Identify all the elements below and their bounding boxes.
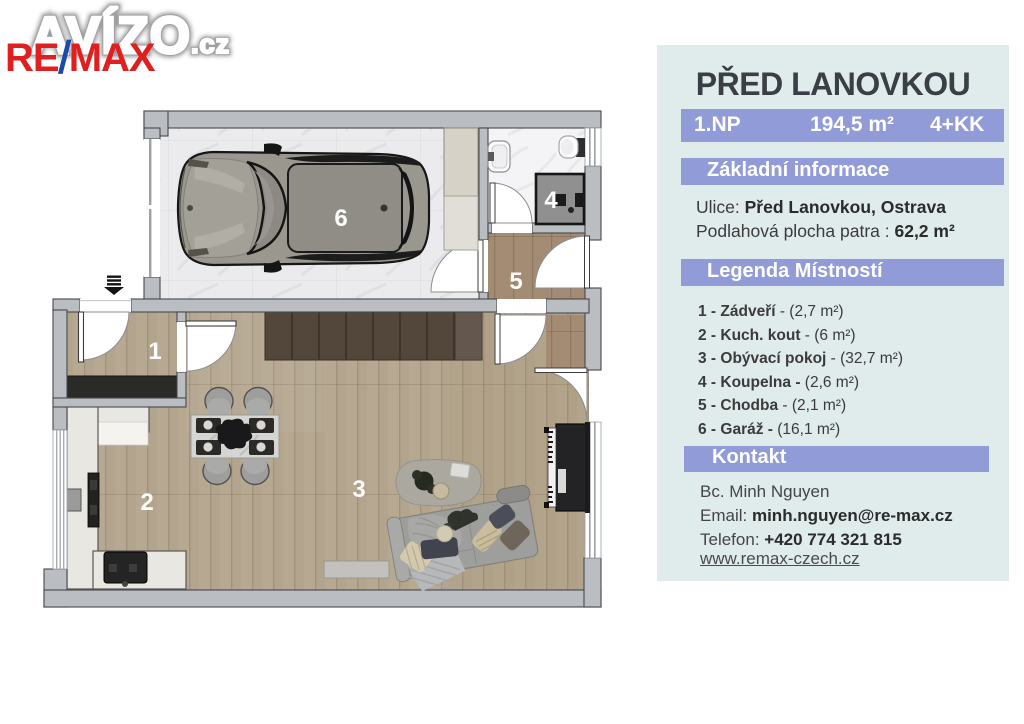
svg-text:1: 1 xyxy=(148,338,161,365)
svg-text:5: 5 xyxy=(509,268,522,295)
svg-text:6: 6 xyxy=(334,205,347,232)
svg-text:4: 4 xyxy=(544,187,558,214)
svg-text:2: 2 xyxy=(140,489,153,516)
svg-text:3: 3 xyxy=(352,476,365,503)
